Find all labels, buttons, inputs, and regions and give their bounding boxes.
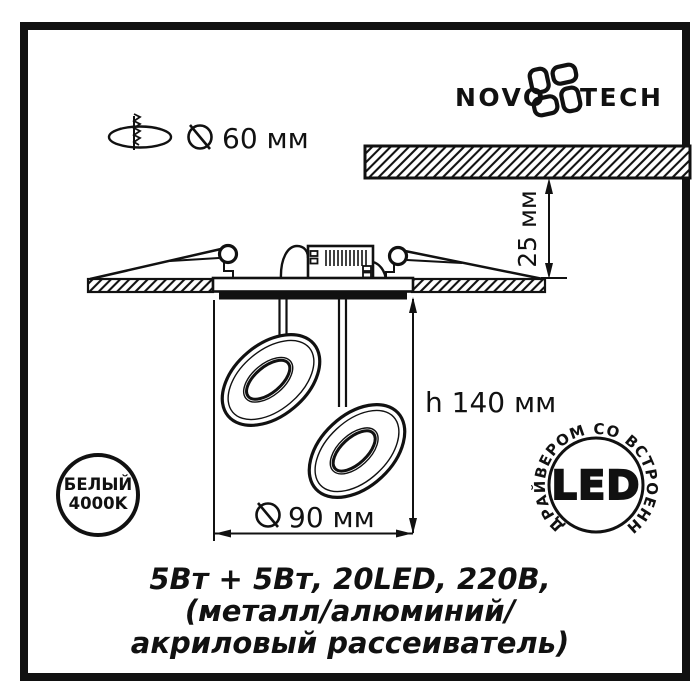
hole-diameter-dimension: 60 мм [189,122,309,155]
spec-line-2: (металл/алюминий/ [30,595,670,627]
brand-text-right: TECH [580,83,663,112]
mounting-flange [213,278,413,292]
height-label: h 140 мм [425,386,556,419]
driver-wire-left [281,246,308,280]
drill-hole-icon [109,114,171,150]
diameter-icon [257,503,280,527]
led-badge-center-label: LED [551,463,640,509]
color-temp-line2: 4000K [69,495,128,514]
diameter-label: 90 мм [288,501,375,534]
product-spec-sheet: 60 мм NOVO TECH 25 мм [0,0,700,700]
recess-depth-label: 25 мм [513,190,542,267]
spec-line-1: 5Вт + 5Вт, 20LED, 220В, [30,563,670,595]
hole-diameter-label: 60 мм [222,122,309,155]
spec-line-3: акриловый рассеиватель) [30,627,670,659]
novotech-pinwheel-icon [527,62,584,119]
diameter-icon [189,125,212,149]
led-ring-head-left [205,316,337,443]
ceiling-edge-right [412,279,545,292]
fixture-drawing [88,246,545,516]
spring-clip-left [90,246,237,280]
led-driver-box [308,246,373,280]
brand-logo: NOVO TECH [455,62,663,119]
ceiling-section [365,146,690,178]
color-temp-badge: БЕЛЫЙ 4000K [56,453,140,537]
spot-stem-right [339,300,346,408]
trim-band [219,292,407,300]
diameter-dimension: 90 мм [214,501,413,538]
ceiling-edge-left [88,279,213,292]
spec-text: 5Вт + 5Вт, 20LED, 220В, (металл/алюминий… [30,563,670,659]
color-temp-line1: БЕЛЫЙ [64,476,132,495]
recess-depth-dimension: 25 мм [513,178,567,279]
led-ring-head-right [291,386,422,515]
